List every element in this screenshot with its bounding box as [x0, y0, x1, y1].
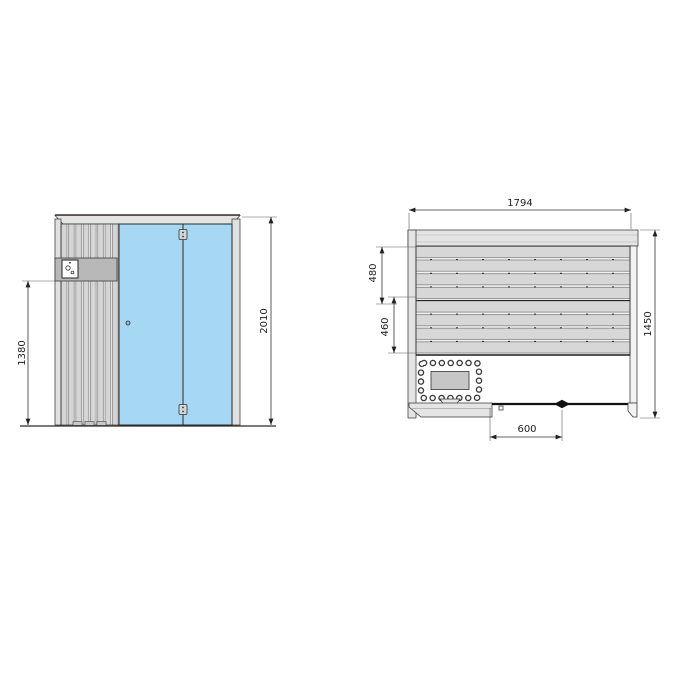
dim-door-width: 600 [490, 408, 562, 441]
plan-right-wall [630, 246, 637, 403]
door-hinge-top-icon [179, 230, 187, 240]
dim-total-height: 2010 [242, 217, 277, 425]
plan-back-wall [408, 230, 638, 246]
dim-label-460: 460 [380, 317, 391, 336]
door-hinge-bottom-icon [179, 405, 187, 415]
plan-front-wall-wood [409, 403, 492, 417]
dim-total-width: 1794 [409, 198, 631, 229]
dim-label-1450: 1450 [643, 311, 654, 336]
front-right-post [232, 219, 240, 425]
front-elevation-view: 1380 2010 [17, 214, 277, 426]
technical-drawing-svg: 1380 2010 [0, 0, 700, 700]
plan-corner-post [628, 403, 637, 417]
dim-label-480: 480 [368, 263, 379, 282]
heater [421, 363, 479, 404]
dim-total-depth: 1450 [640, 230, 660, 418]
control-unit-icon [62, 260, 78, 278]
plan-door-hinge-icon [554, 400, 570, 408]
front-feet [73, 422, 106, 426]
plan-door-handle-icon [499, 406, 503, 410]
dim-control-panel-height: 1380 [17, 281, 55, 425]
door-handle-icon [126, 321, 130, 325]
drawing-canvas: 1380 2010 [0, 0, 700, 700]
dim-label-2010: 2010 [259, 308, 270, 333]
dim-label-1794: 1794 [507, 198, 532, 209]
front-wood-slat-wall [61, 224, 119, 425]
dim-label-600: 600 [517, 424, 536, 435]
plan-view: 1794 1450 480 460 600 [368, 198, 660, 441]
heater-body [431, 372, 469, 390]
front-left-post [55, 219, 61, 425]
fixed-glass-panel [183, 224, 232, 425]
plan-left-wall [408, 230, 416, 418]
front-top-frame [55, 216, 240, 225]
dim-label-1380: 1380 [17, 340, 28, 365]
